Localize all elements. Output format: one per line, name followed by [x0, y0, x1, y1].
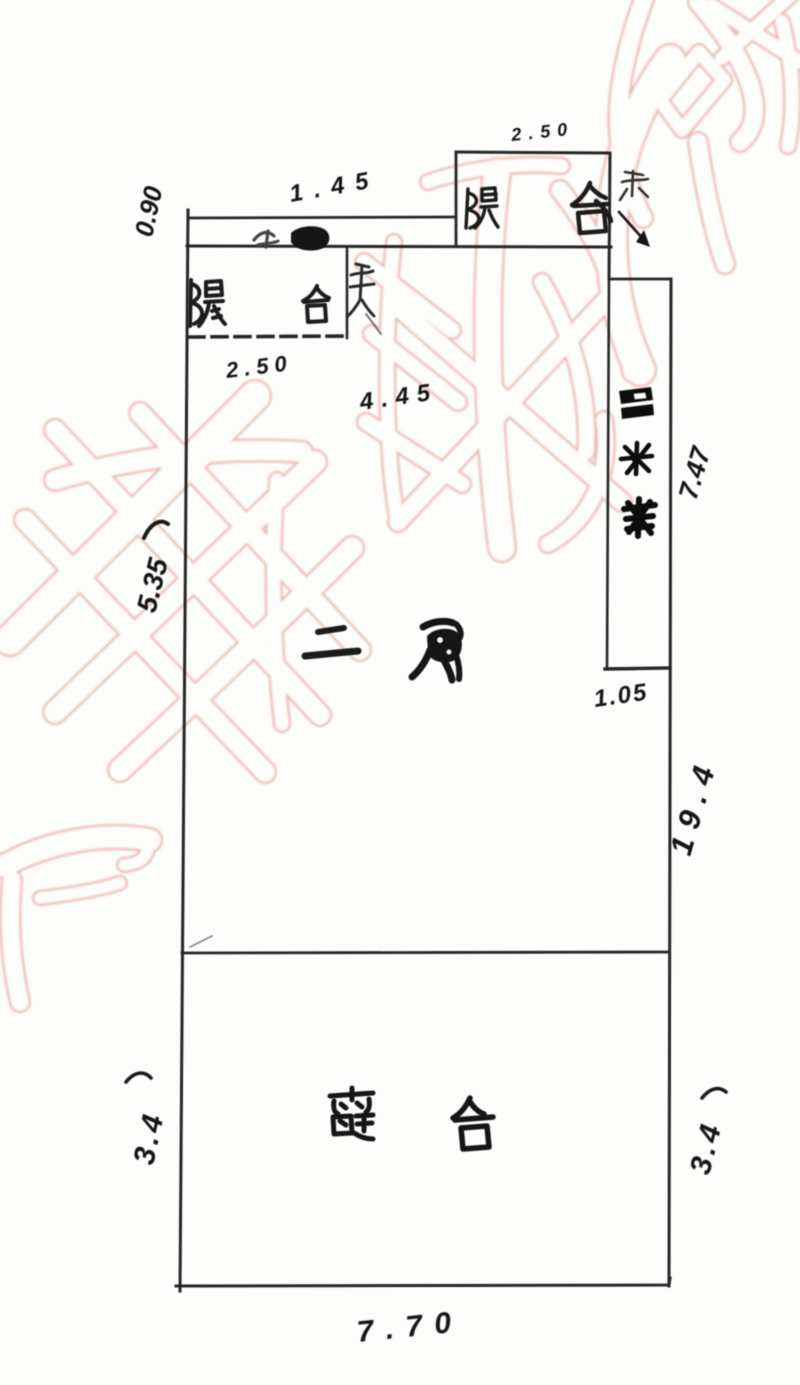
svg-text:1.05: 1.05: [592, 679, 650, 713]
svg-text:7.70: 7.70: [355, 1305, 464, 1349]
svg-text:3.4: 3.4: [684, 1118, 729, 1178]
svg-text:2.50: 2.50: [509, 118, 575, 145]
svg-text:0.90: 0.90: [129, 183, 169, 239]
svg-text:7.47: 7.47: [673, 442, 717, 503]
svg-text:1.45: 1.45: [287, 166, 381, 208]
svg-text:2.50: 2.50: [224, 350, 294, 383]
svg-text:19.4: 19.4: [663, 753, 724, 859]
svg-text:4.45: 4.45: [357, 378, 440, 416]
svg-text:3.4: 3.4: [128, 1108, 171, 1167]
